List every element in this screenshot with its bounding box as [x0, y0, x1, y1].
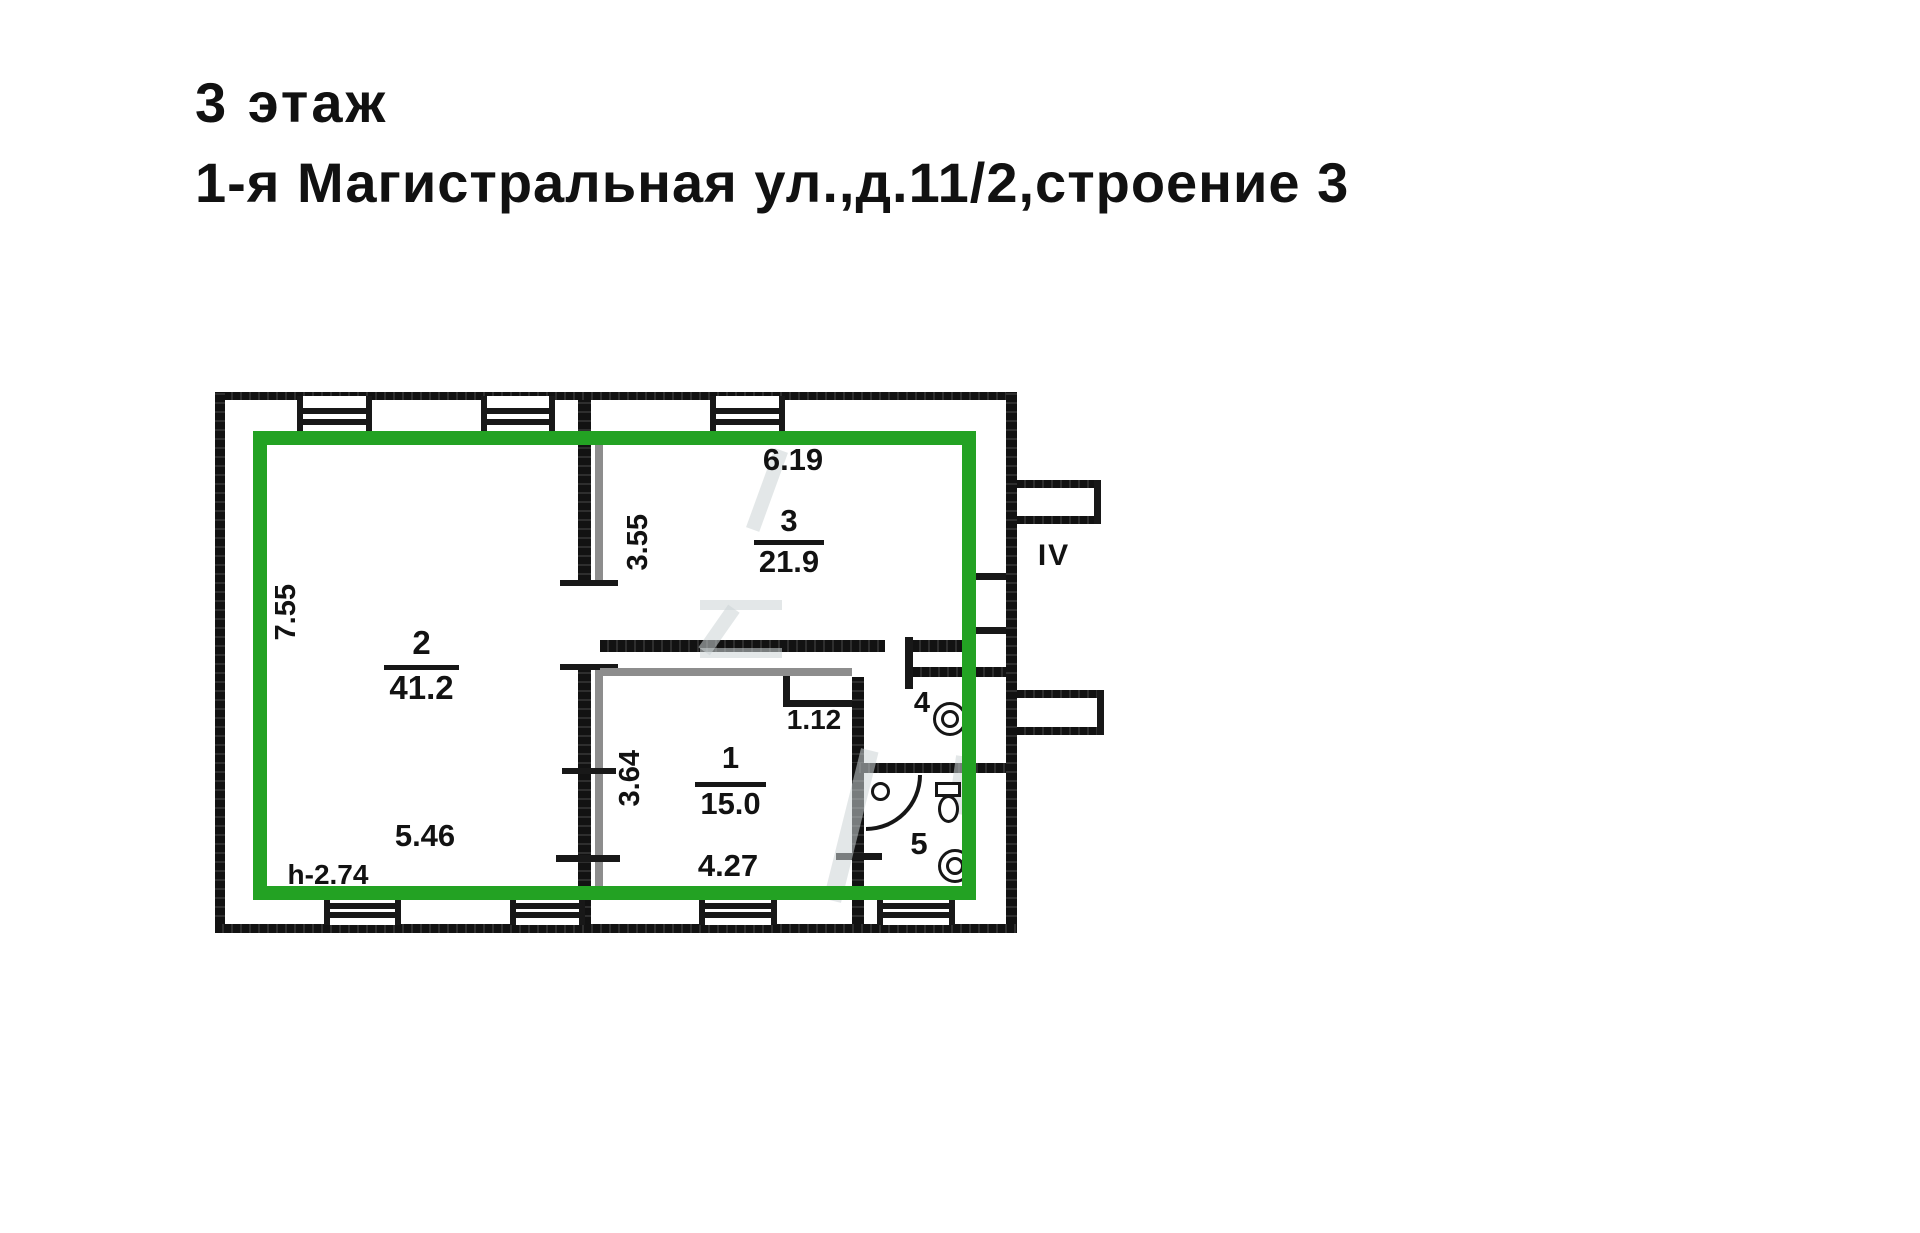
window-bar	[883, 903, 949, 909]
window-bar	[516, 912, 579, 918]
room-area: 15.0	[695, 788, 766, 821]
window-bar	[330, 903, 395, 909]
room-area: 41.2	[384, 671, 459, 706]
window-icon	[699, 896, 777, 925]
room-number: 3	[754, 505, 824, 538]
room-number: 4	[908, 688, 936, 718]
window-bar	[883, 912, 949, 918]
ledge-bottom-line	[1017, 516, 1100, 524]
window-bar	[516, 903, 579, 909]
dimension-label: 1.12	[778, 705, 850, 734]
room-area: 21.9	[754, 546, 824, 579]
dimension-label: 7.55	[271, 567, 301, 657]
wall-outer-bottom	[215, 924, 1017, 933]
dimension-label: 5.46	[385, 820, 465, 853]
dimension-label: 3.55	[623, 497, 653, 587]
ledge-cap	[1094, 480, 1101, 524]
window-icon	[481, 396, 555, 433]
ledge-top-line	[1017, 480, 1100, 488]
wall-shaft-divider	[976, 573, 1006, 580]
window-icon	[710, 396, 785, 433]
wall-outer-left	[215, 392, 225, 933]
window-bar	[303, 408, 366, 414]
window-bar	[303, 419, 366, 425]
ledge-top-line	[1017, 690, 1103, 698]
window-bar	[705, 903, 771, 909]
dimension-label: 6.19	[748, 444, 838, 477]
dimension-label: 3.64	[615, 733, 645, 823]
room-number: 5	[904, 828, 934, 861]
ledge-bottom-line	[1017, 727, 1103, 735]
floor-title: 3 этаж	[195, 70, 388, 135]
window-bar	[716, 419, 779, 425]
window-bar	[716, 408, 779, 414]
window-bar	[330, 912, 395, 918]
window-icon	[510, 896, 585, 925]
window-icon	[297, 396, 372, 433]
room-number: 1	[695, 742, 766, 775]
window-bar	[487, 419, 549, 425]
room-number: 2	[384, 626, 459, 661]
ceiling-height-label: h-2.74	[278, 860, 378, 889]
window-icon	[877, 896, 955, 925]
scanned-floorplan-page: 3 этаж 1-я Магистральная ул.,д.11/2,стро…	[0, 0, 1920, 1233]
wall-outer-right	[1006, 392, 1017, 933]
ledge-cap	[1097, 690, 1104, 735]
window-bar	[705, 912, 771, 918]
dimension-label: 4.27	[688, 850, 768, 883]
highlight-rectangle	[253, 431, 976, 900]
wall-shaft-divider	[976, 627, 1006, 634]
stairwell-label: IV	[1032, 540, 1076, 572]
window-bar	[487, 408, 549, 414]
address-title: 1-я Магистральная ул.,д.11/2,строение 3	[195, 150, 1349, 215]
window-icon	[324, 896, 401, 925]
